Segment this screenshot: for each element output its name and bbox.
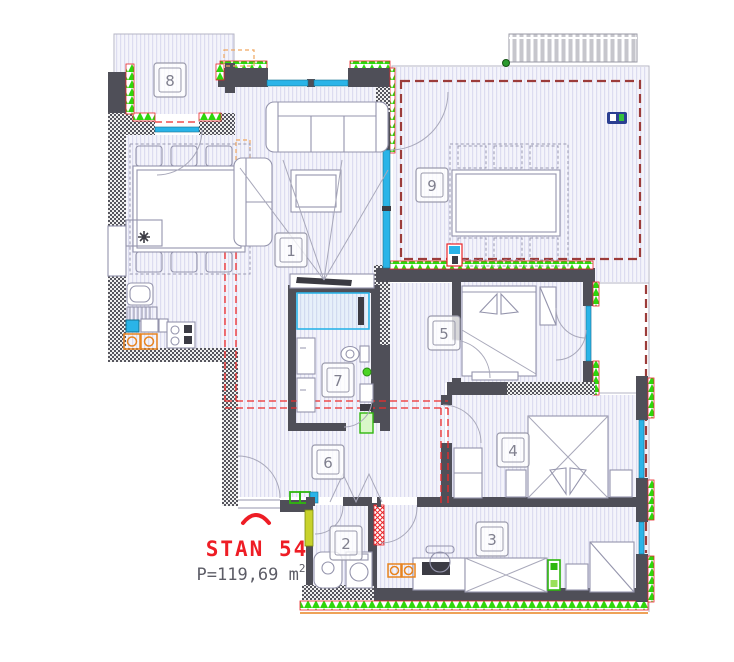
laptop [422, 562, 450, 575]
pergola [503, 34, 638, 67]
room-label-toilet: 2 [330, 526, 362, 560]
room-label-living-room: 1 [275, 233, 307, 267]
room-label-terrace: 9 [416, 168, 448, 202]
room-number: 1 [286, 242, 296, 260]
dining-table [133, 166, 245, 252]
room-number: 4 [508, 442, 518, 460]
sink [126, 320, 139, 332]
floor-plan-page: 123456789 STAN 54 P=119,69 m2 [0, 0, 734, 662]
terrace-table [452, 170, 560, 236]
room5-balcony-door [586, 306, 591, 361]
nightstand-4b [610, 470, 632, 497]
balcony-door-window [155, 127, 199, 132]
room-label-bathroom: 7 [322, 363, 354, 397]
toilet [341, 346, 369, 362]
entrance-threshold [238, 500, 280, 508]
cabinet-3 [566, 564, 588, 590]
floor-plan-svg: 123456789 STAN 54 P=119,69 m2 [0, 0, 734, 662]
vanity-2 [297, 378, 315, 412]
room-number: 7 [333, 372, 343, 390]
area-label: P=119,69 m2 [197, 562, 306, 585]
shaft-marker-red [374, 505, 384, 545]
nightstand-4a [506, 470, 526, 497]
stove [167, 322, 195, 348]
apartment-label: STAN 54 [206, 537, 309, 561]
room-label-bedroom-4: 4 [497, 433, 529, 467]
room-number: 3 [487, 531, 497, 549]
room-number: 6 [323, 454, 333, 472]
room-label-bedroom-5: 5 [428, 316, 460, 350]
living-window-left [267, 80, 308, 86]
room4-window [639, 420, 644, 478]
wall-niche [108, 226, 126, 276]
pergola-post-marker [503, 60, 510, 67]
living-window-right [314, 80, 348, 86]
vent-shaft-marker [447, 244, 462, 266]
room-label-balcony: 8 [154, 63, 186, 97]
bench-5 [472, 372, 518, 380]
armchair [234, 158, 272, 246]
room-number: 8 [165, 72, 175, 90]
room3-window [639, 522, 644, 554]
room-label-hallway: 6 [312, 445, 344, 479]
light-switch-marker [607, 112, 627, 124]
vanity-1 [297, 338, 315, 374]
room-number: 2 [341, 535, 351, 553]
bed-5 [462, 286, 536, 376]
sofa [266, 102, 388, 152]
room-number: 5 [439, 325, 449, 343]
radiator-3 [548, 560, 560, 590]
drain-marker [363, 368, 371, 376]
room-label-bedroom-3: 3 [476, 522, 508, 556]
room-number: 9 [427, 177, 437, 195]
title-block: STAN 54 P=119,69 m2 [197, 537, 309, 585]
entrance-arrow [243, 515, 269, 523]
